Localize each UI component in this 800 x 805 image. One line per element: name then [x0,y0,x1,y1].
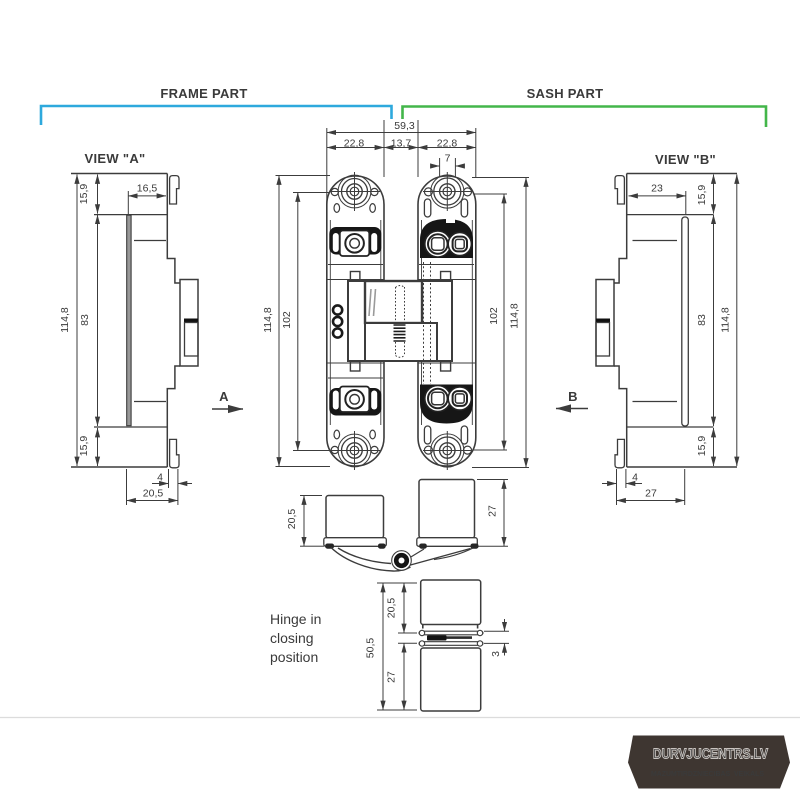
svg-text:15,9: 15,9 [78,184,90,205]
svg-text:closing: closing [270,630,314,646]
svg-text:Hinge in: Hinge in [270,611,321,627]
svg-text:4: 4 [632,472,638,484]
svg-text:15,9: 15,9 [696,185,708,206]
svg-text:20,5: 20,5 [286,509,298,530]
svg-text:59,3: 59,3 [394,120,415,132]
svg-text:20,5: 20,5 [386,598,398,619]
svg-text:DURVJUCENTRS.LV: DURVJUCENTRS.LV [653,747,768,763]
svg-text:VIEW "B": VIEW "B" [655,152,716,167]
svg-text:FRAME PART: FRAME PART [160,86,247,101]
svg-text:4: 4 [157,472,163,484]
svg-text:50,5: 50,5 [365,638,377,659]
svg-text:A: A [219,389,229,404]
svg-text:102: 102 [281,311,293,329]
svg-text:20,5: 20,5 [143,488,164,500]
svg-text:114,8: 114,8 [720,307,732,333]
svg-text:23: 23 [651,183,663,195]
svg-text:16,5: 16,5 [137,183,158,195]
svg-text:SASH PART: SASH PART [527,86,604,101]
svg-text:MAZUMTIRDZNIECIBAS VEIKALS: MAZUMTIRDZNIECIBAS VEIKALS [651,771,764,778]
svg-text:27: 27 [386,671,398,683]
svg-text:B: B [568,389,578,404]
svg-text:3: 3 [490,651,502,657]
svg-text:83: 83 [696,314,708,326]
svg-text:22,8: 22,8 [344,137,365,149]
svg-text:27: 27 [645,488,657,500]
svg-text:114,8: 114,8 [59,307,71,333]
svg-text:13,7: 13,7 [391,137,412,149]
svg-text:VIEW "A": VIEW "A" [85,151,146,166]
svg-text:position: position [270,649,318,665]
svg-text:22,8: 22,8 [437,137,458,149]
svg-text:15,9: 15,9 [78,436,90,457]
svg-text:27: 27 [487,505,499,517]
svg-text:7: 7 [445,153,451,165]
svg-text:83: 83 [79,314,91,326]
svg-text:114,8: 114,8 [262,307,274,333]
svg-text:102: 102 [488,307,500,325]
svg-text:114,8: 114,8 [509,303,521,329]
svg-text:15,9: 15,9 [696,436,708,457]
